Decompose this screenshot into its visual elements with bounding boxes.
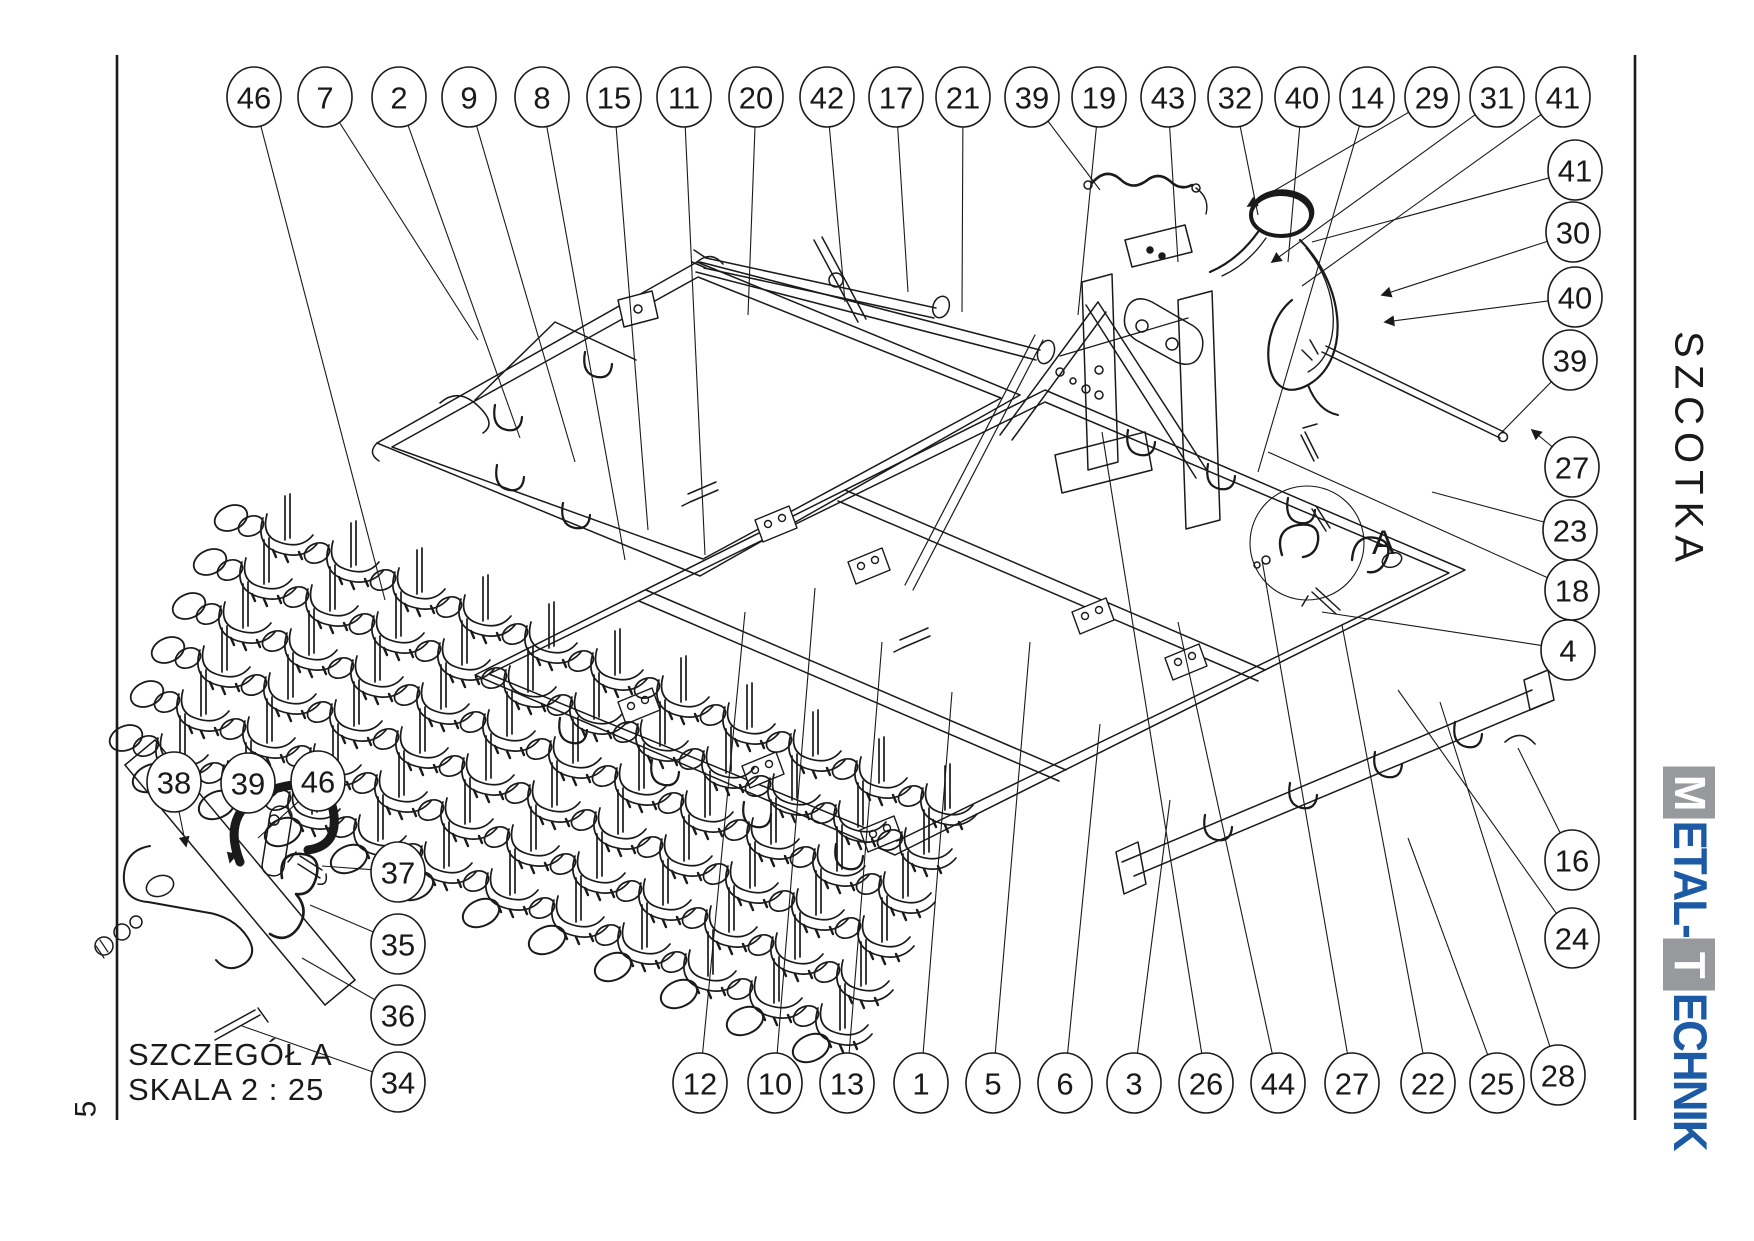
callout-number-21: 21 bbox=[946, 81, 980, 116]
callout-number-5: 5 bbox=[984, 1067, 1001, 1102]
callout-number-37: 37 bbox=[381, 856, 415, 891]
callout-leader-8 bbox=[547, 126, 625, 560]
callout-leader-26 bbox=[1102, 432, 1202, 1054]
detail-title: SZCZEGÓŁ A bbox=[128, 1038, 333, 1073]
callout-number-40: 40 bbox=[1285, 81, 1319, 116]
callout-number-10: 10 bbox=[758, 1067, 792, 1102]
callout-leader-12 bbox=[702, 612, 745, 1054]
main-frame bbox=[475, 302, 1465, 869]
callout-number-12: 12 bbox=[683, 1067, 717, 1102]
callout-number-22: 22 bbox=[1411, 1067, 1445, 1102]
callout-number-20: 20 bbox=[739, 81, 773, 116]
detail-caption: SZCZEGÓŁ A SKALA 2 : 25 bbox=[128, 1038, 333, 1107]
callout-leader-30 bbox=[1382, 241, 1548, 295]
callout-leader-39 bbox=[1047, 120, 1100, 190]
callout-number-11: 11 bbox=[668, 81, 700, 116]
callout-number-16: 16 bbox=[1555, 844, 1589, 879]
callout-number-42: 42 bbox=[810, 81, 844, 116]
callout-leader-28 bbox=[1440, 702, 1550, 1047]
callout-number-2: 2 bbox=[390, 81, 407, 116]
callout-number-39: 39 bbox=[1015, 81, 1049, 116]
callout-leader-40 bbox=[1385, 301, 1549, 322]
callout-number-41: 41 bbox=[1546, 81, 1580, 116]
callout-leader-44 bbox=[1178, 622, 1272, 1055]
callout-number-39: 39 bbox=[1553, 344, 1587, 379]
callout-number-29: 29 bbox=[1415, 81, 1449, 116]
callout-number-28: 28 bbox=[1541, 1059, 1575, 1094]
callout-number-4: 4 bbox=[1559, 634, 1576, 669]
drawing-sheet: 4672981511204217213919433240142931414130… bbox=[0, 0, 1754, 1241]
callout-leader-6 bbox=[1068, 724, 1100, 1054]
callout-leader-2 bbox=[408, 124, 520, 438]
callout-number-46: 46 bbox=[301, 765, 335, 800]
sheet-title: SZCOTKA bbox=[1666, 331, 1711, 569]
callout-number-24: 24 bbox=[1555, 922, 1589, 957]
detail-scale: SKALA 2 : 25 bbox=[128, 1073, 333, 1108]
logo-segment: M bbox=[1663, 767, 1715, 819]
callout-leader-29 bbox=[1248, 112, 1409, 206]
hydraulic-hoses bbox=[1084, 174, 1338, 415]
callout-leader-9 bbox=[476, 125, 575, 462]
callout-leader-22 bbox=[1342, 625, 1423, 1054]
callout-number-30: 30 bbox=[1556, 216, 1590, 251]
callout-number-43: 43 bbox=[1151, 81, 1185, 116]
callout-number-38: 38 bbox=[157, 766, 191, 801]
callout-leader-3 bbox=[1137, 800, 1170, 1054]
callout-leader-35 bbox=[310, 905, 374, 932]
callout-leader-41 bbox=[1312, 178, 1550, 242]
callout-number-9: 9 bbox=[460, 81, 477, 116]
callout-leader-16 bbox=[1518, 748, 1561, 834]
logo-segment: ECHNIK bbox=[1662, 993, 1716, 1150]
callout-number-19: 19 bbox=[1082, 81, 1116, 116]
callout-number-44: 44 bbox=[1261, 1067, 1295, 1102]
callout-number-39: 39 bbox=[231, 767, 265, 802]
callout-number-27: 27 bbox=[1335, 1067, 1369, 1102]
callout-leader-42 bbox=[829, 126, 845, 302]
callout-number-15: 15 bbox=[597, 81, 631, 116]
callout-leader-23 bbox=[1432, 492, 1545, 522]
callout-number-26: 26 bbox=[1189, 1067, 1223, 1102]
callout-number-25: 25 bbox=[1480, 1067, 1514, 1102]
callout-number-23: 23 bbox=[1553, 514, 1587, 549]
callout-number-32: 32 bbox=[1218, 81, 1252, 116]
callout-number-13: 13 bbox=[830, 1067, 864, 1102]
callout-leader-17 bbox=[898, 126, 908, 292]
callout-leader-1 bbox=[923, 692, 952, 1054]
callout-number-36: 36 bbox=[381, 999, 415, 1034]
callout-leader-25 bbox=[1408, 838, 1488, 1056]
callout-leader-7 bbox=[339, 122, 478, 340]
callout-number-8: 8 bbox=[533, 81, 550, 116]
callout-leader-46 bbox=[261, 125, 385, 600]
callout-number-31: 31 bbox=[1480, 81, 1514, 116]
callout-leader-27 bbox=[1262, 560, 1348, 1054]
callout-number-6: 6 bbox=[1056, 1067, 1073, 1102]
callout-leader-24 bbox=[1398, 690, 1557, 914]
page-number: 5 bbox=[69, 1101, 103, 1118]
callout-leader-37 bbox=[322, 866, 372, 870]
callout-leader-19 bbox=[1078, 126, 1096, 315]
callout-leader-27 bbox=[1532, 430, 1553, 447]
callout-number-17: 17 bbox=[879, 81, 913, 116]
tine-detail-parts bbox=[1250, 424, 1404, 614]
callout-number-7: 7 bbox=[316, 81, 333, 116]
callout-number-14: 14 bbox=[1350, 81, 1384, 116]
logo-segment: ETAL- bbox=[1662, 821, 1716, 937]
callout-leader-4 bbox=[1322, 612, 1542, 646]
logo-segment: T bbox=[1663, 939, 1715, 991]
callout-leader-31 bbox=[1272, 114, 1476, 262]
callout-leader-5 bbox=[995, 642, 1030, 1054]
detail-a-marker: A bbox=[1372, 524, 1395, 563]
sheet-border-lines bbox=[117, 55, 1635, 1120]
callout-balloons: 4672981511204217213919433240142931414130… bbox=[147, 67, 1602, 1113]
callout-leader-21 bbox=[962, 126, 963, 312]
callout-leader-15 bbox=[616, 126, 648, 530]
callout-number-1: 1 bbox=[912, 1067, 929, 1102]
hitch-tower bbox=[1055, 225, 1220, 529]
callout-number-46: 46 bbox=[237, 81, 271, 116]
callout-number-35: 35 bbox=[381, 928, 415, 963]
callout-leader-43 bbox=[1170, 126, 1178, 262]
callout-number-18: 18 bbox=[1555, 574, 1589, 609]
callout-leader-39 bbox=[1498, 381, 1552, 436]
callout-number-34: 34 bbox=[381, 1066, 415, 1101]
callout-leader-10 bbox=[777, 588, 815, 1054]
callout-number-40: 40 bbox=[1558, 281, 1592, 316]
callout-leader-14 bbox=[1258, 125, 1360, 472]
callout-number-27: 27 bbox=[1555, 451, 1589, 486]
metal-technik-logo: METAL-TECHNIK bbox=[1663, 765, 1715, 1150]
callout-number-3: 3 bbox=[1125, 1067, 1142, 1102]
callout-leader-38 bbox=[179, 811, 186, 846]
callout-number-41: 41 bbox=[1558, 154, 1592, 189]
